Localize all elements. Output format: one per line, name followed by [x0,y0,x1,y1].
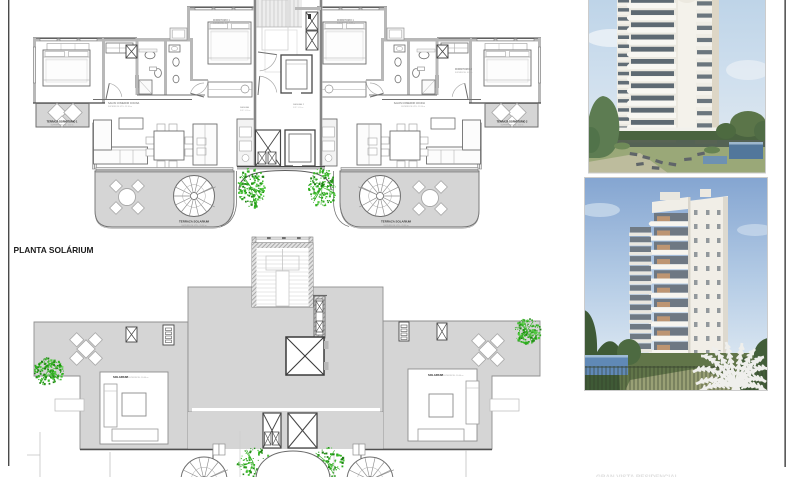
svg-text:SUPERFICIE UTIL: 29.86 m: SUPERFICIE UTIL: 29.86 m [181,225,207,227]
svg-text:SOLARIUM: SOLARIUM [113,375,129,379]
svg-text:TERRAZA SOLARIUM: TERRAZA SOLARIUM [179,220,210,224]
svg-text:DORMITORIO 1: DORMITORIO 1 [337,20,355,22]
svg-text:PLANTA SOLÁRIUM: PLANTA SOLÁRIUM [14,244,94,255]
svg-text:TERRAZA DORMITORIO 1: TERRAZA DORMITORIO 1 [47,121,78,124]
svg-text:SUPERFICIE: 10.5 m: SUPERFICIE: 10.5 m [455,72,473,74]
svg-text:SUPERFICIE: 30.00 m: SUPERFICIE: 30.00 m [443,375,464,377]
svg-text:SOLARIUM: SOLARIUM [428,373,444,377]
svg-text:SUPERFICIE UTIL: 7.30 m: SUPERFICIE UTIL: 7.30 m [501,125,524,127]
svg-text:SUP: 9.30 m: SUP: 9.30 m [240,110,251,112]
svg-text:ZAGUAN: ZAGUAN [240,106,250,109]
svg-text:SUPERFICIE: 30.00 m: SUPERFICIE: 30.00 m [128,377,149,379]
svg-text:SUP: 9.30 m: SUP: 9.30 m [293,107,304,109]
svg-text:SALON COMEDOR COCINA: SALON COMEDOR COCINA [394,102,426,105]
svg-text:SUPERFICIE UTIL: 23.10 m: SUPERFICIE UTIL: 23.10 m [401,106,425,108]
svg-text:DORMITORIO 2: DORMITORIO 2 [455,69,473,71]
svg-text:SUPERFICIE UTIL: 23.10 m: SUPERFICIE UTIL: 23.10 m [108,106,132,108]
svg-text:SUPERFICIE UTIL: 7.30 m: SUPERFICIE UTIL: 7.30 m [51,125,74,127]
svg-text:SUPERFICIE: 11.95 m: SUPERFICIE: 11.95 m [213,23,232,25]
svg-text:TERRAZA DORMITORIO 2: TERRAZA DORMITORIO 2 [497,121,528,124]
svg-text:SALON COMEDOR COCINA: SALON COMEDOR COCINA [108,102,140,105]
svg-text:TERRAZA SOLARIUM: TERRAZA SOLARIUM [381,220,412,224]
svg-text:DORMITORIO 1: DORMITORIO 1 [213,20,231,22]
svg-text:SUPERFICIE: 11.95 m: SUPERFICIE: 11.95 m [337,23,356,25]
svg-text:SUPERFICIE UTIL: 29.86 m: SUPERFICIE UTIL: 29.86 m [383,225,409,227]
svg-text:ZAGUAN 2: ZAGUAN 2 [293,103,305,106]
